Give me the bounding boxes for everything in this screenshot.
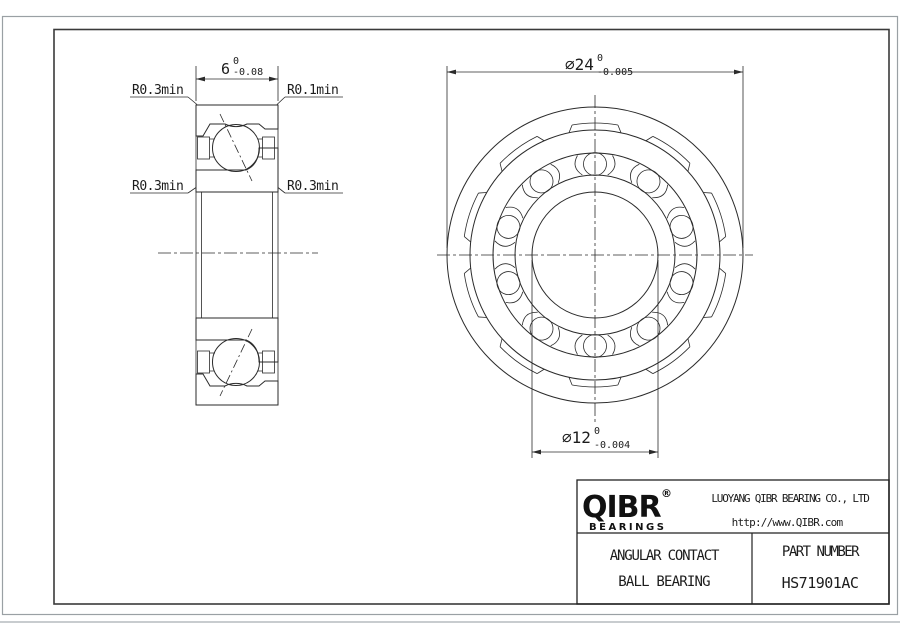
radius-label-mid-right: R0.3min	[287, 179, 338, 194]
product-name-line1: ANGULAR CONTACT	[610, 548, 720, 564]
radius-label-top-right: R0.1min	[287, 83, 338, 98]
company-logo: QIBR ® BEARINGS	[582, 487, 672, 533]
cage-section-top-left	[198, 137, 210, 159]
od-dim-value: ⌀24	[565, 55, 594, 74]
width-dim-tol-upper: 0	[233, 56, 239, 67]
bore-lines	[196, 192, 278, 318]
width-dim-tol-lower: -0.08	[233, 67, 263, 78]
bearing-section-top	[196, 105, 278, 192]
drawing-canvas: 6 0 -0.08 R0.3min R0.1min R0.3min R0.3mi…	[0, 0, 900, 636]
inner-ring-section-top	[196, 148, 278, 192]
part-number-label: PART NUMBER	[782, 544, 860, 560]
title-block: QIBR ® BEARINGS LUOYANG QIBR BEARING CO.…	[577, 480, 889, 604]
outer-ring-section-top	[196, 105, 278, 136]
logo-text: QIBR	[582, 490, 662, 525]
section-view: 6 0 -0.08 R0.3min R0.1min R0.3min R0.3mi…	[130, 56, 343, 405]
od-dim-tol-upper: 0	[597, 53, 603, 64]
registered-mark: ®	[661, 487, 672, 500]
width-dim-value: 6	[221, 60, 230, 78]
drawing-page: 6 0 -0.08 R0.3min R0.1min R0.3min R0.3mi…	[0, 0, 900, 636]
inner-ring-section-bottom	[196, 318, 278, 362]
radius-label-mid-left: R0.3min	[132, 179, 183, 194]
front-view: ⌀24 0 -0.005 ⌀12 0 -0.004	[437, 53, 753, 458]
bearing-section-bottom	[196, 318, 278, 405]
radius-label-top-left: R0.3min	[132, 83, 183, 98]
bore-dim-tol-upper: 0	[594, 426, 600, 437]
radius-callouts: R0.3min R0.1min R0.3min R0.3min	[130, 83, 343, 194]
cage-section-bottom-left	[198, 351, 210, 373]
width-dimension: 6 0 -0.08	[196, 56, 278, 101]
company-website: http://www.QIBR.com	[732, 516, 844, 529]
part-number-value: HS71901AC	[782, 574, 859, 592]
outer-ring-section-bottom	[196, 374, 278, 405]
bore-dim-tol-lower: -0.004	[594, 440, 630, 451]
logo-subtext: BEARINGS	[589, 522, 666, 533]
bore-dim-value: ⌀12	[562, 428, 591, 447]
product-name-line2: BALL BEARING	[618, 574, 710, 590]
od-dim-tol-lower: -0.005	[597, 67, 633, 78]
company-name: LUOYANG QIBR BEARING CO., LTD	[711, 492, 869, 505]
